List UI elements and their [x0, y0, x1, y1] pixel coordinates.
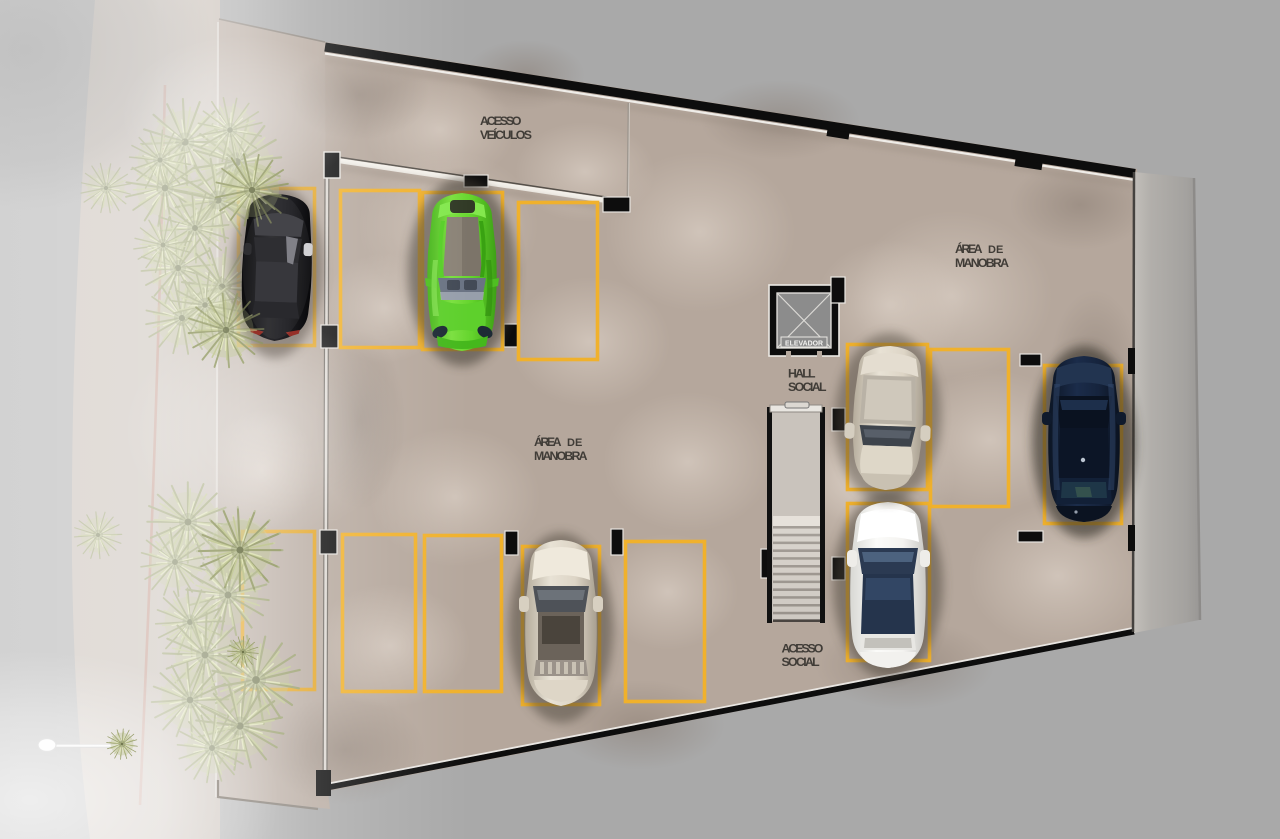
svg-text:HALL: HALL — [788, 367, 816, 381]
svg-text:DE: DE — [988, 244, 1003, 256]
svg-text:MANOBRA: MANOBRA — [955, 256, 1009, 270]
svg-text:ÁREA: ÁREA — [534, 434, 562, 449]
svg-text:ÁREA: ÁREA — [955, 241, 983, 256]
svg-text:SOCIAL: SOCIAL — [788, 380, 827, 394]
svg-text:VEÍCULOS: VEÍCULOS — [480, 127, 532, 142]
svg-text:ACESSO: ACESSO — [782, 642, 824, 656]
svg-text:SOCIAL: SOCIAL — [782, 655, 821, 669]
svg-text:ACESSO: ACESSO — [480, 114, 522, 128]
svg-text:ELEVADOR: ELEVADOR — [785, 341, 823, 348]
svg-text:MANOBRA: MANOBRA — [534, 449, 588, 463]
svg-text:DE: DE — [567, 437, 582, 449]
